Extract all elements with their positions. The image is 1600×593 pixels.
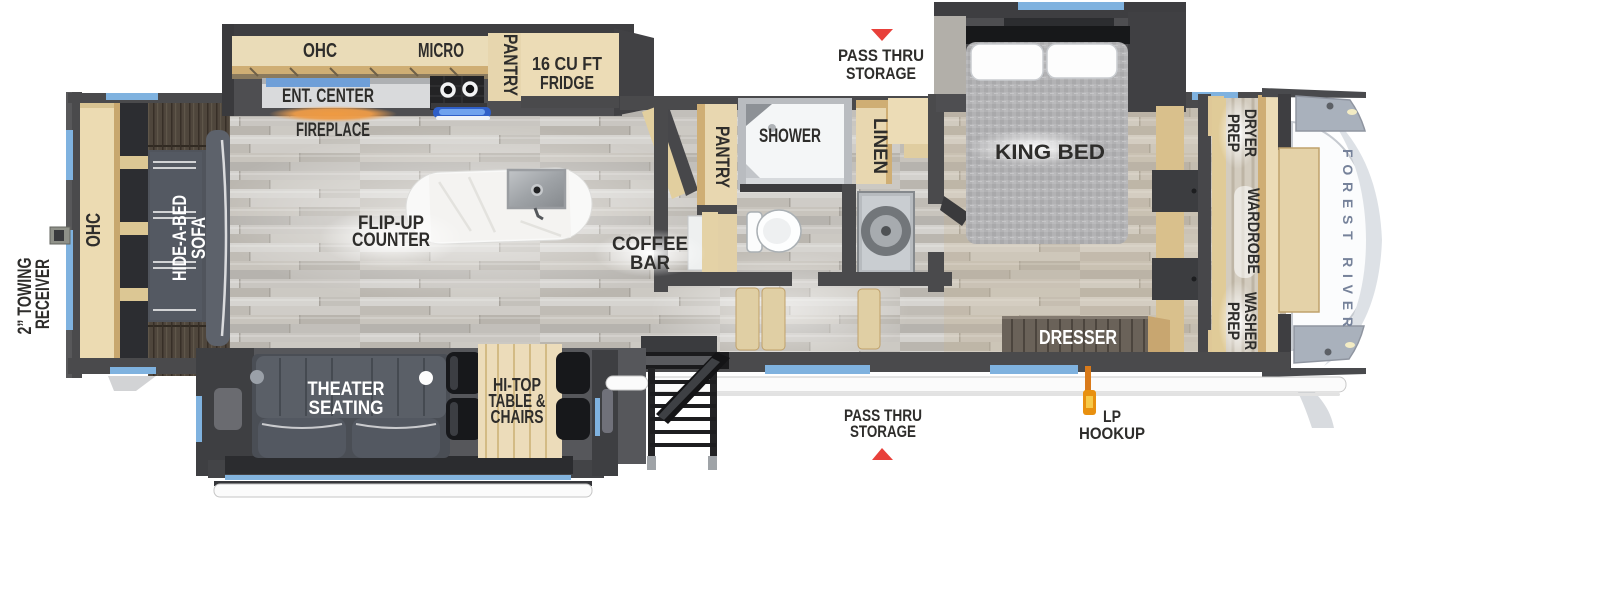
svg-text:DRYER: DRYER: [1241, 109, 1260, 157]
svg-text:OHC: OHC: [83, 213, 105, 247]
svg-text:FRIDGE: FRIDGE: [540, 73, 594, 93]
svg-text:HIDE-A-BED: HIDE-A-BED: [170, 195, 191, 281]
svg-text:SEATING: SEATING: [309, 398, 384, 419]
svg-text:BAR: BAR: [630, 253, 670, 274]
svg-text:HOOKUP: HOOKUP: [1079, 424, 1145, 443]
svg-text:SOFA: SOFA: [189, 217, 210, 259]
svg-text:SHOWER: SHOWER: [759, 126, 821, 147]
svg-text:16 CU FT: 16 CU FT: [532, 54, 602, 74]
svg-text:COFFEE: COFFEE: [612, 234, 688, 255]
svg-text:OHC: OHC: [303, 40, 337, 62]
svg-text:PANTRY: PANTRY: [499, 34, 520, 96]
svg-text:KING BED: KING BED: [995, 141, 1105, 164]
svg-text:DRESSER: DRESSER: [1039, 327, 1117, 349]
svg-text:RECEIVER: RECEIVER: [33, 259, 54, 329]
svg-text:FIREPLACE: FIREPLACE: [296, 120, 370, 141]
svg-text:STORAGE: STORAGE: [846, 64, 916, 83]
svg-text:WARDROBE: WARDROBE: [1244, 188, 1263, 274]
svg-text:PREP: PREP: [1224, 114, 1243, 152]
svg-text:CHAIRS: CHAIRS: [491, 407, 544, 427]
svg-text:WASHER: WASHER: [1241, 292, 1260, 350]
svg-text:STORAGE: STORAGE: [850, 422, 916, 441]
svg-text:LINEN: LINEN: [869, 118, 890, 174]
svg-text:PREP: PREP: [1224, 302, 1243, 340]
svg-text:COUNTER: COUNTER: [352, 230, 430, 251]
svg-text:ENT. CENTER: ENT. CENTER: [282, 86, 374, 107]
svg-text:PANTRY: PANTRY: [711, 126, 732, 188]
svg-text:THEATER: THEATER: [308, 379, 385, 400]
svg-text:MICRO: MICRO: [418, 40, 464, 62]
svg-text:PASS THRU: PASS THRU: [838, 46, 924, 65]
